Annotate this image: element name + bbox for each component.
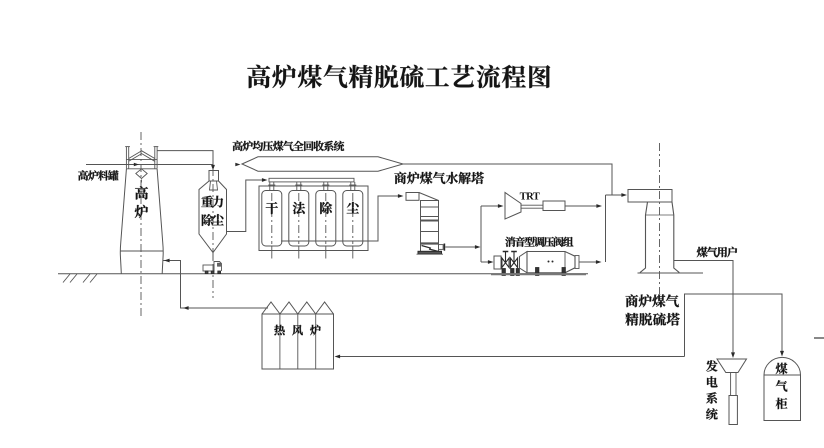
- svg-text:TRT: TRT: [520, 192, 540, 203]
